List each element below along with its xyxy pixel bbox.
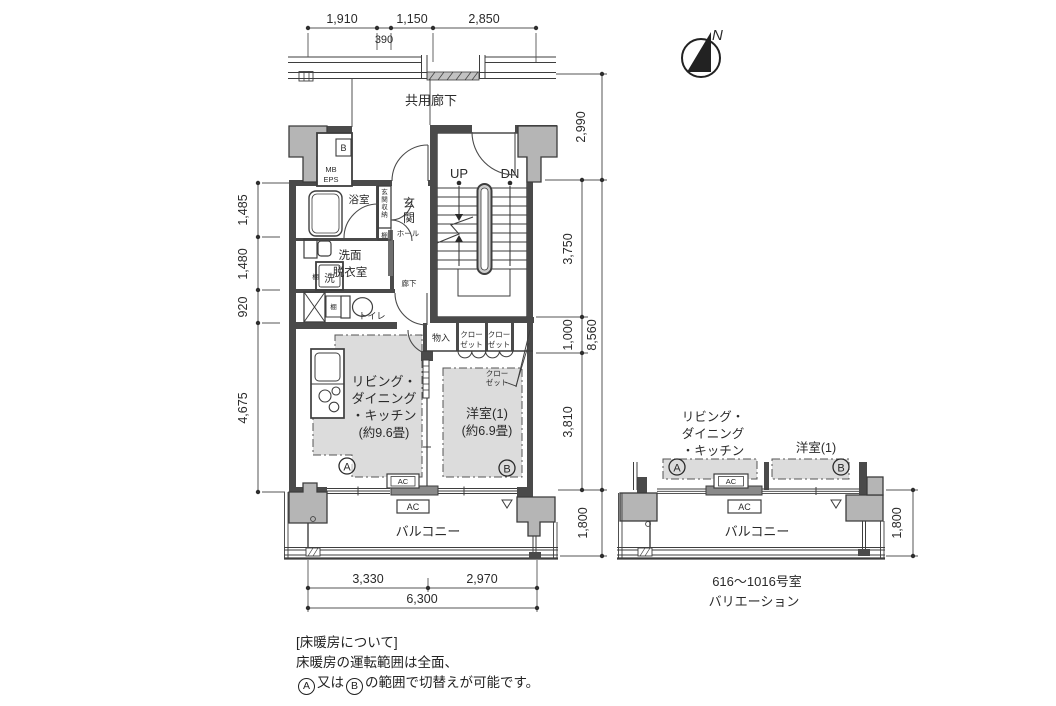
dim-right-inner-3: 3,810 xyxy=(561,406,575,437)
variation-ldk-label-2: ダイニング xyxy=(682,426,745,441)
eps-label: EPS xyxy=(323,175,338,184)
ldk-label-2: ダイニング xyxy=(351,391,416,406)
closet2-label-1: クロー xyxy=(488,330,511,339)
floor-heating-note: [床暖房について] 床暖房の運転範囲は全面、 A又はBの範囲で切替えが可能です。 xyxy=(296,633,539,695)
floor-heating-zones xyxy=(313,335,849,479)
shelf-label: 棚 xyxy=(381,231,388,240)
closet-folding-doors xyxy=(458,351,513,358)
dim-right-outer-1: 2,990 xyxy=(574,111,588,142)
closet3-label-1: クロー xyxy=(486,369,509,378)
dim-top-1: 1,910 xyxy=(326,12,357,26)
zone-a-label: A xyxy=(343,462,351,474)
variation-ldk-label-1: リビング・ xyxy=(682,410,745,424)
western-room-size-label: (約6.9畳) xyxy=(462,423,513,438)
north-label: N xyxy=(712,27,723,44)
washroom-label-2: 脱衣室 xyxy=(333,265,368,279)
shelf-label: 棚 xyxy=(330,302,337,311)
entrance-storage-label: 玄関収納 xyxy=(381,187,388,219)
dim-bottom-total: 6,300 xyxy=(406,592,437,606)
level-marker xyxy=(831,500,841,508)
stair-break-line xyxy=(437,217,473,243)
dim-right-outer-3: 1,800 xyxy=(576,507,590,538)
vanity xyxy=(304,239,317,258)
floor-plan-page: 共用廊下 UP DN xyxy=(0,0,1056,706)
inner-corridor-label: 廊下 xyxy=(402,278,417,288)
level-marker xyxy=(502,500,512,508)
note-zone-b-badge: B xyxy=(346,678,363,695)
closet1-label-1: クロー xyxy=(460,330,483,339)
ldk-label-3: ・キッチン xyxy=(351,408,416,423)
variation-caption-1: 616〜1016号室 xyxy=(712,574,802,589)
closet3-label-2: ゼット xyxy=(486,377,509,387)
balcony-label: バルコニー xyxy=(396,524,461,539)
variation-zone-a-label: A xyxy=(673,463,681,475)
note-line-1: [床暖房について] xyxy=(296,633,539,653)
dim-bottom-2: 2,970 xyxy=(466,572,497,586)
dim-bottom-1: 3,330 xyxy=(352,572,383,586)
toilet-label: トイレ xyxy=(358,311,385,321)
dim-right-outer-2: 8,560 xyxy=(585,319,599,350)
closet2-label-2: ゼット xyxy=(488,339,511,349)
dim-top-sub: 390 xyxy=(375,34,393,46)
ac-label-indoor: AC xyxy=(398,477,409,486)
storage-label: 物入 xyxy=(432,332,450,343)
dim-left-3: 920 xyxy=(236,297,250,318)
western-room-label: 洋室(1) xyxy=(466,406,508,421)
stairwell xyxy=(437,133,527,317)
ac-label-balcony: AC xyxy=(407,502,420,512)
zone-b-label: B xyxy=(503,464,510,476)
hall-label: ホール xyxy=(397,229,420,238)
dim-top-3: 2,850 xyxy=(468,12,499,26)
dim-top-2: 1,150 xyxy=(396,12,427,26)
washroom-label-1: 洗面 xyxy=(339,249,362,262)
variation-ac-label-indoor: AC xyxy=(726,477,737,486)
dim-left-4: 4,675 xyxy=(236,392,250,423)
floor-plan-drawing: 共用廊下 UP DN xyxy=(0,0,1056,706)
bathtub xyxy=(309,191,342,236)
variation-ldk-label-3: ・キッチン xyxy=(682,444,745,458)
variation-ac-label-balcony: AC xyxy=(738,502,751,512)
variation-left-wall xyxy=(634,462,638,490)
note-line-2: 床暖房の運転範囲は全面、 xyxy=(296,653,539,673)
variation-zone-b-label: B xyxy=(837,463,844,475)
ldk-size-label: (約9.6畳) xyxy=(359,425,410,440)
north-compass-icon: N xyxy=(682,27,723,77)
variation-caption-2: バリエーション xyxy=(709,594,800,609)
meter-box-label: MB xyxy=(325,165,336,174)
closet1-label-2: ゼット xyxy=(460,339,483,349)
variation-column-right xyxy=(846,495,883,521)
column-bottom-right xyxy=(517,497,555,536)
ldk-label-1: リビング・ xyxy=(351,374,416,389)
dim-right-inner-2: 1,000 xyxy=(561,319,575,350)
column-top-right xyxy=(518,126,557,182)
variation-column-left xyxy=(620,493,657,521)
note-line-3: A又はBの範囲で切替えが可能です。 xyxy=(296,673,539,695)
variation-balcony-label: バルコニー xyxy=(725,524,790,539)
common-corridor xyxy=(288,55,556,127)
toilet-tank xyxy=(341,296,350,318)
dim-variation-1800: 1,800 xyxy=(890,507,904,538)
common-corridor-label: 共用廊下 xyxy=(405,93,457,108)
dim-left-2: 1,480 xyxy=(236,248,250,279)
shelf-label: 棚 xyxy=(312,272,319,281)
dim-right-inner-1: 3,750 xyxy=(561,233,575,264)
variation-western-room-label: 洋室(1) xyxy=(796,440,836,455)
bathroom-label: 浴室 xyxy=(349,193,370,206)
note-between: 又は xyxy=(317,675,344,690)
washer-label: 洗 xyxy=(324,273,335,285)
stairs-up-label: UP xyxy=(450,166,468,181)
note-zone-a-badge: A xyxy=(298,678,315,695)
note-line-3-rest: の範囲で切替えが可能です。 xyxy=(365,675,539,690)
dim-left-1: 1,485 xyxy=(236,194,250,225)
meter-box-b-label: B xyxy=(340,143,346,153)
